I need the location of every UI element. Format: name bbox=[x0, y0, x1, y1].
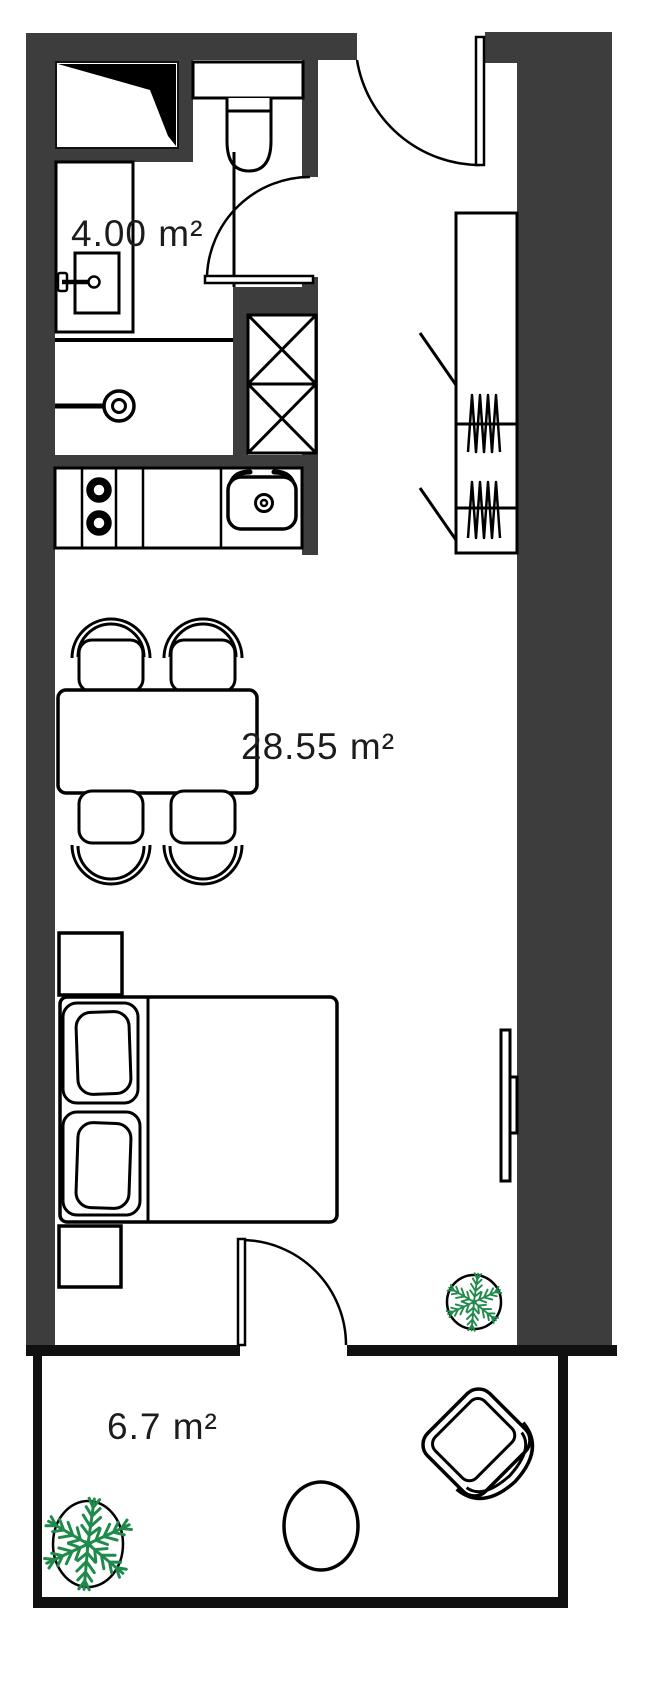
balcony-table-icon bbox=[284, 1482, 358, 1570]
plant-icon bbox=[446, 1273, 502, 1331]
armchair-icon bbox=[414, 1380, 548, 1514]
wall-shaft-side bbox=[233, 315, 248, 455]
area-label-living-room: 28.55 m² bbox=[241, 728, 395, 765]
nightstand-icon bbox=[59, 933, 122, 995]
chair-icon bbox=[164, 791, 242, 884]
shaft-icon bbox=[248, 315, 316, 453]
ventilation-niche bbox=[56, 62, 178, 148]
floor-plan: 4.00 m² 28.55 m² 6.7 m² bbox=[0, 0, 646, 1697]
bed-area bbox=[59, 933, 337, 1287]
tv-icon bbox=[501, 1030, 517, 1181]
wall-bottom-left-segment bbox=[26, 1345, 240, 1356]
wall-kitchen-bar bbox=[55, 455, 302, 468]
chair-icon bbox=[164, 619, 242, 692]
area-label-bathroom: 4.00 m² bbox=[71, 215, 203, 252]
wall-top-right bbox=[485, 32, 612, 63]
kitchen-sink-icon bbox=[228, 472, 296, 529]
wall-bath-bar-h bbox=[233, 287, 318, 315]
chair-icon bbox=[72, 791, 150, 884]
balcony-wall-right bbox=[558, 1356, 568, 1608]
dining-set bbox=[58, 619, 257, 884]
area-label-balcony: 6.7 m² bbox=[107, 1408, 218, 1445]
kitchen bbox=[55, 468, 302, 548]
wall-right bbox=[517, 63, 612, 1348]
chair-icon bbox=[72, 619, 150, 692]
floor-plan-drawing bbox=[0, 0, 646, 1697]
balcony-plant-icon bbox=[43, 1498, 133, 1590]
pillow-icon bbox=[76, 1122, 132, 1209]
nightstand-icon bbox=[59, 1226, 121, 1287]
balcony-door-icon bbox=[238, 1239, 346, 1345]
shower-drain-icon bbox=[55, 391, 134, 421]
balcony-wall-left bbox=[33, 1356, 42, 1608]
wall-top bbox=[193, 33, 357, 60]
dining-table-icon bbox=[58, 690, 257, 793]
wall-left bbox=[26, 60, 55, 1350]
wall-bottom-right-segment bbox=[347, 1345, 617, 1356]
balcony-wall-bottom bbox=[33, 1597, 568, 1608]
pillow-icon bbox=[76, 1011, 132, 1095]
wardrobe-icon bbox=[420, 213, 517, 553]
entrance-door-icon bbox=[357, 37, 484, 165]
toilet-icon bbox=[193, 62, 303, 171]
bed-icon bbox=[60, 997, 337, 1222]
bathroom-door-icon bbox=[205, 177, 313, 283]
